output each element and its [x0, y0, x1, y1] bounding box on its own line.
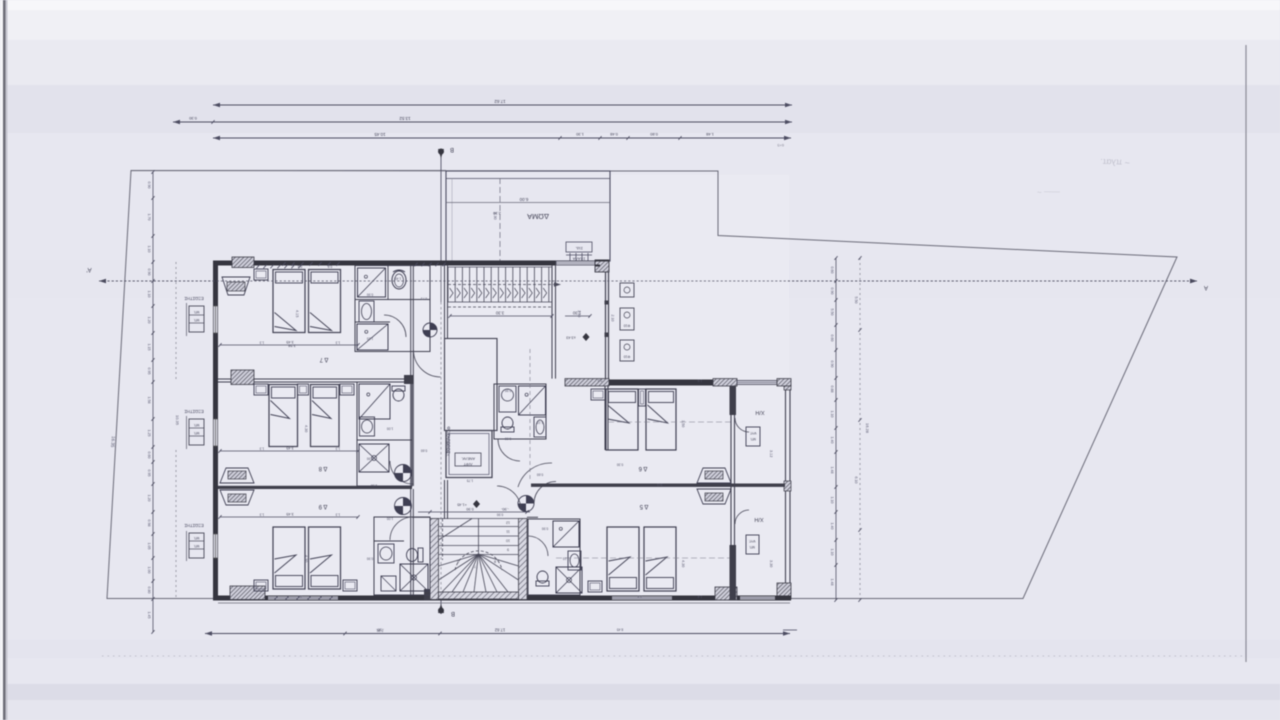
svg-text:ΜΠ.: ΜΠ.	[193, 544, 199, 548]
svg-text:0.90: 0.90	[830, 288, 834, 295]
svg-text:ΨΥΓ.: ΨΥΓ.	[749, 431, 756, 435]
svg-text:0.90: 0.90	[147, 182, 151, 189]
svg-text:0.90: 0.90	[505, 437, 512, 441]
svg-text:ΜΠ.: ΜΠ.	[193, 310, 199, 314]
svg-text:2.3: 2.3	[638, 595, 643, 599]
svg-text:ΜΠ.: ΜΠ.	[749, 545, 755, 549]
svg-text:16.28: 16.28	[865, 423, 870, 434]
svg-text:1.00: 1.00	[387, 517, 394, 521]
svg-text:+1.45: +1.45	[457, 502, 467, 506]
svg-text:1.4: 1.4	[698, 595, 703, 599]
svg-text:0.95: 0.95	[147, 368, 151, 375]
svg-text:1.10: 1.10	[537, 421, 544, 425]
svg-text:13.52: 13.52	[399, 116, 411, 121]
svg-text:1.3: 1.3	[260, 447, 265, 451]
svg-text:1.20: 1.20	[147, 317, 151, 324]
svg-text:0.90: 0.90	[147, 269, 151, 276]
svg-text:0.8: 0.8	[328, 265, 333, 269]
svg-text:ΕΞΩΣΤΗΣ: ΕΞΩΣΤΗΣ	[184, 296, 204, 301]
svg-text:0.80: 0.80	[147, 587, 151, 594]
svg-text:3.45: 3.45	[286, 512, 293, 516]
svg-text:0.90: 0.90	[497, 513, 504, 517]
svg-text:0.90: 0.90	[830, 361, 834, 368]
svg-text:X/H: X/H	[755, 409, 764, 415]
svg-text:A: A	[1204, 284, 1208, 290]
svg-text:1.40: 1.40	[830, 437, 834, 444]
svg-text:1.25: 1.25	[147, 430, 151, 437]
svg-text:1.30: 1.30	[577, 310, 581, 317]
svg-text:0.30: 0.30	[617, 463, 624, 467]
svg-text:0.60: 0.60	[537, 473, 544, 477]
svg-text:4.30: 4.30	[681, 560, 685, 567]
svg-text:1.3: 1.3	[260, 341, 265, 345]
svg-text:1.10: 1.10	[830, 549, 834, 556]
svg-text:±3.43: ±3.43	[566, 335, 575, 339]
svg-text:Δ 5: Δ 5	[639, 503, 648, 509]
svg-text:0.60: 0.60	[147, 452, 151, 459]
svg-text:0.90: 0.90	[505, 389, 512, 393]
svg-text:ΚΛΙΜΑΚΟΣΤ.: ΚΛΙΜΑΚΟΣΤ.	[446, 433, 451, 457]
svg-text:0.90: 0.90	[466, 507, 473, 511]
svg-text:10: 10	[506, 539, 510, 543]
svg-text:1.10: 1.10	[147, 246, 151, 253]
svg-text:-.90-: -.90-	[500, 507, 509, 511]
svg-text:Δ 8: Δ 8	[318, 465, 327, 471]
svg-text:0.90: 0.90	[367, 557, 374, 561]
svg-text:17.62: 17.62	[494, 628, 505, 633]
svg-text:ΛΙΦΤ: ΛΙΦΤ	[463, 462, 473, 466]
svg-text:1.10: 1.10	[147, 291, 151, 298]
svg-text:10.45: 10.45	[374, 132, 386, 137]
svg-text:11: 11	[506, 530, 510, 534]
svg-text:6.00: 6.00	[519, 197, 528, 202]
svg-text:ΜΠ.: ΜΠ.	[750, 437, 756, 441]
svg-text:1.3: 1.3	[336, 341, 341, 345]
svg-text:ΣΚΑΛΑ: ΣΚΑΛΑ	[572, 256, 585, 260]
svg-text:1.48: 1.48	[705, 132, 714, 137]
svg-text:0.95: 0.95	[147, 470, 151, 477]
svg-text:ΨΥΓ.: ΨΥΓ.	[748, 539, 755, 543]
svg-text:1.00: 1.00	[147, 567, 151, 574]
svg-text:ΜΠ.: ΜΠ.	[193, 431, 199, 435]
svg-text:B: B	[451, 610, 455, 616]
svg-text:4.15: 4.15	[295, 310, 299, 317]
svg-text:1.50: 1.50	[681, 420, 685, 427]
svg-text:ΕΞΩΣΤΗΣ: ΕΞΩΣΤΗΣ	[184, 409, 204, 414]
svg-text:1.40: 1.40	[395, 277, 402, 281]
svg-text:1.58: 1.58	[147, 397, 151, 404]
svg-text:7: 7	[474, 565, 476, 569]
svg-text:1.3: 1.3	[260, 513, 265, 517]
svg-text:3.30: 3.30	[495, 311, 504, 316]
svg-text:4.30: 4.30	[304, 555, 308, 562]
svg-text:~ πλατ.: ~ πλατ.	[1100, 157, 1130, 168]
svg-text:1.10: 1.10	[830, 411, 834, 418]
svg-text:10.35: 10.35	[175, 415, 180, 426]
svg-text:ΜΠ.: ΜΠ.	[193, 318, 199, 322]
svg-text:Δ 7: Δ 7	[319, 356, 328, 362]
svg-text:1.15: 1.15	[147, 344, 151, 351]
svg-text:Φ10: Φ10	[624, 355, 631, 359]
svg-text:0.60: 0.60	[830, 267, 834, 274]
svg-text:0.90: 0.90	[367, 293, 374, 297]
svg-text:16.35: 16.35	[110, 436, 116, 448]
svg-text:ΜΠ.: ΜΠ.	[193, 536, 199, 540]
svg-text:1.05: 1.05	[147, 543, 151, 550]
svg-text:0.90: 0.90	[367, 457, 374, 461]
svg-text:5.50: 5.50	[854, 297, 858, 304]
svg-text:1.70: 1.70	[147, 214, 151, 221]
svg-text:1.10: 1.10	[563, 557, 570, 561]
svg-text:B: B	[450, 146, 454, 152]
svg-text:1.10: 1.10	[830, 497, 834, 504]
svg-text:0.30: 0.30	[188, 116, 197, 121]
svg-text:3.45: 3.45	[286, 446, 293, 450]
svg-text:3.30: 3.30	[769, 560, 773, 567]
svg-text:12: 12	[506, 521, 510, 525]
svg-text:1.3: 1.3	[336, 447, 341, 451]
svg-text:5.50: 5.50	[830, 309, 834, 316]
svg-text:1.9: 1.9	[698, 379, 703, 383]
svg-text:Φ10: Φ10	[624, 324, 631, 328]
svg-text:1.40: 1.40	[830, 523, 834, 530]
svg-text:0.60: 0.60	[830, 335, 834, 342]
svg-text:ΔΩΜΑ: ΔΩΜΑ	[527, 212, 549, 221]
svg-text:2.10: 2.10	[611, 315, 615, 322]
svg-text:0.48: 0.48	[609, 132, 618, 137]
svg-text:6+5: 6+5	[776, 143, 784, 148]
svg-text:9: 9	[507, 548, 509, 552]
svg-text:3+3: 3+3	[657, 483, 663, 487]
svg-text:0.75: 0.75	[421, 297, 428, 301]
svg-text:3.12: 3.12	[769, 450, 773, 457]
svg-text:6: 6	[457, 560, 459, 564]
svg-text:3.45: 3.45	[286, 340, 293, 344]
svg-text:2.4: 2.4	[298, 595, 303, 599]
svg-text:0.30: 0.30	[377, 629, 384, 633]
svg-text:ΑΝΕΛΚ.: ΑΝΕΛΚ.	[461, 456, 475, 460]
svg-text:1.20: 1.20	[367, 337, 374, 341]
svg-text:6.10: 6.10	[854, 477, 858, 484]
svg-text:1.3: 1.3	[336, 513, 341, 517]
svg-text:0.9: 0.9	[598, 379, 603, 383]
svg-text:0.98: 0.98	[147, 520, 151, 527]
svg-text:ΜΠ.: ΜΠ.	[193, 423, 199, 427]
svg-text:ΕΞΩΣΤΗΣ: ΕΞΩΣΤΗΣ	[184, 523, 204, 528]
svg-text:0.80: 0.80	[649, 132, 658, 137]
svg-text:X/H: X/H	[754, 516, 763, 522]
svg-text:1.48: 1.48	[830, 467, 834, 474]
svg-text:1.48: 1.48	[830, 579, 834, 586]
svg-text:—— ~: —— ~	[1037, 188, 1060, 197]
svg-text:1.45: 1.45	[147, 612, 151, 619]
svg-text:17.62: 17.62	[494, 99, 506, 104]
svg-text:0.90: 0.90	[542, 527, 549, 531]
svg-text:8.45: 8.45	[617, 628, 624, 632]
svg-text:0.8: 0.8	[298, 265, 303, 269]
svg-text:2.30: 2.30	[493, 212, 498, 221]
svg-text:1.75: 1.75	[467, 479, 474, 483]
svg-text:A': A'	[86, 266, 91, 272]
svg-text:ΣΙΔ.: ΣΙΔ.	[575, 246, 582, 251]
svg-text:1.00: 1.00	[387, 427, 394, 431]
svg-text:Δ 9: Δ 9	[318, 503, 327, 509]
svg-text:1.20: 1.20	[147, 495, 151, 502]
svg-text:0.88: 0.88	[830, 386, 834, 393]
svg-text:0.60: 0.60	[421, 449, 428, 453]
svg-text:4.30: 4.30	[304, 425, 308, 432]
svg-text:1.30: 1.30	[575, 132, 584, 137]
svg-text:Δ 6: Δ 6	[638, 465, 647, 471]
svg-text:8: 8	[494, 560, 496, 564]
